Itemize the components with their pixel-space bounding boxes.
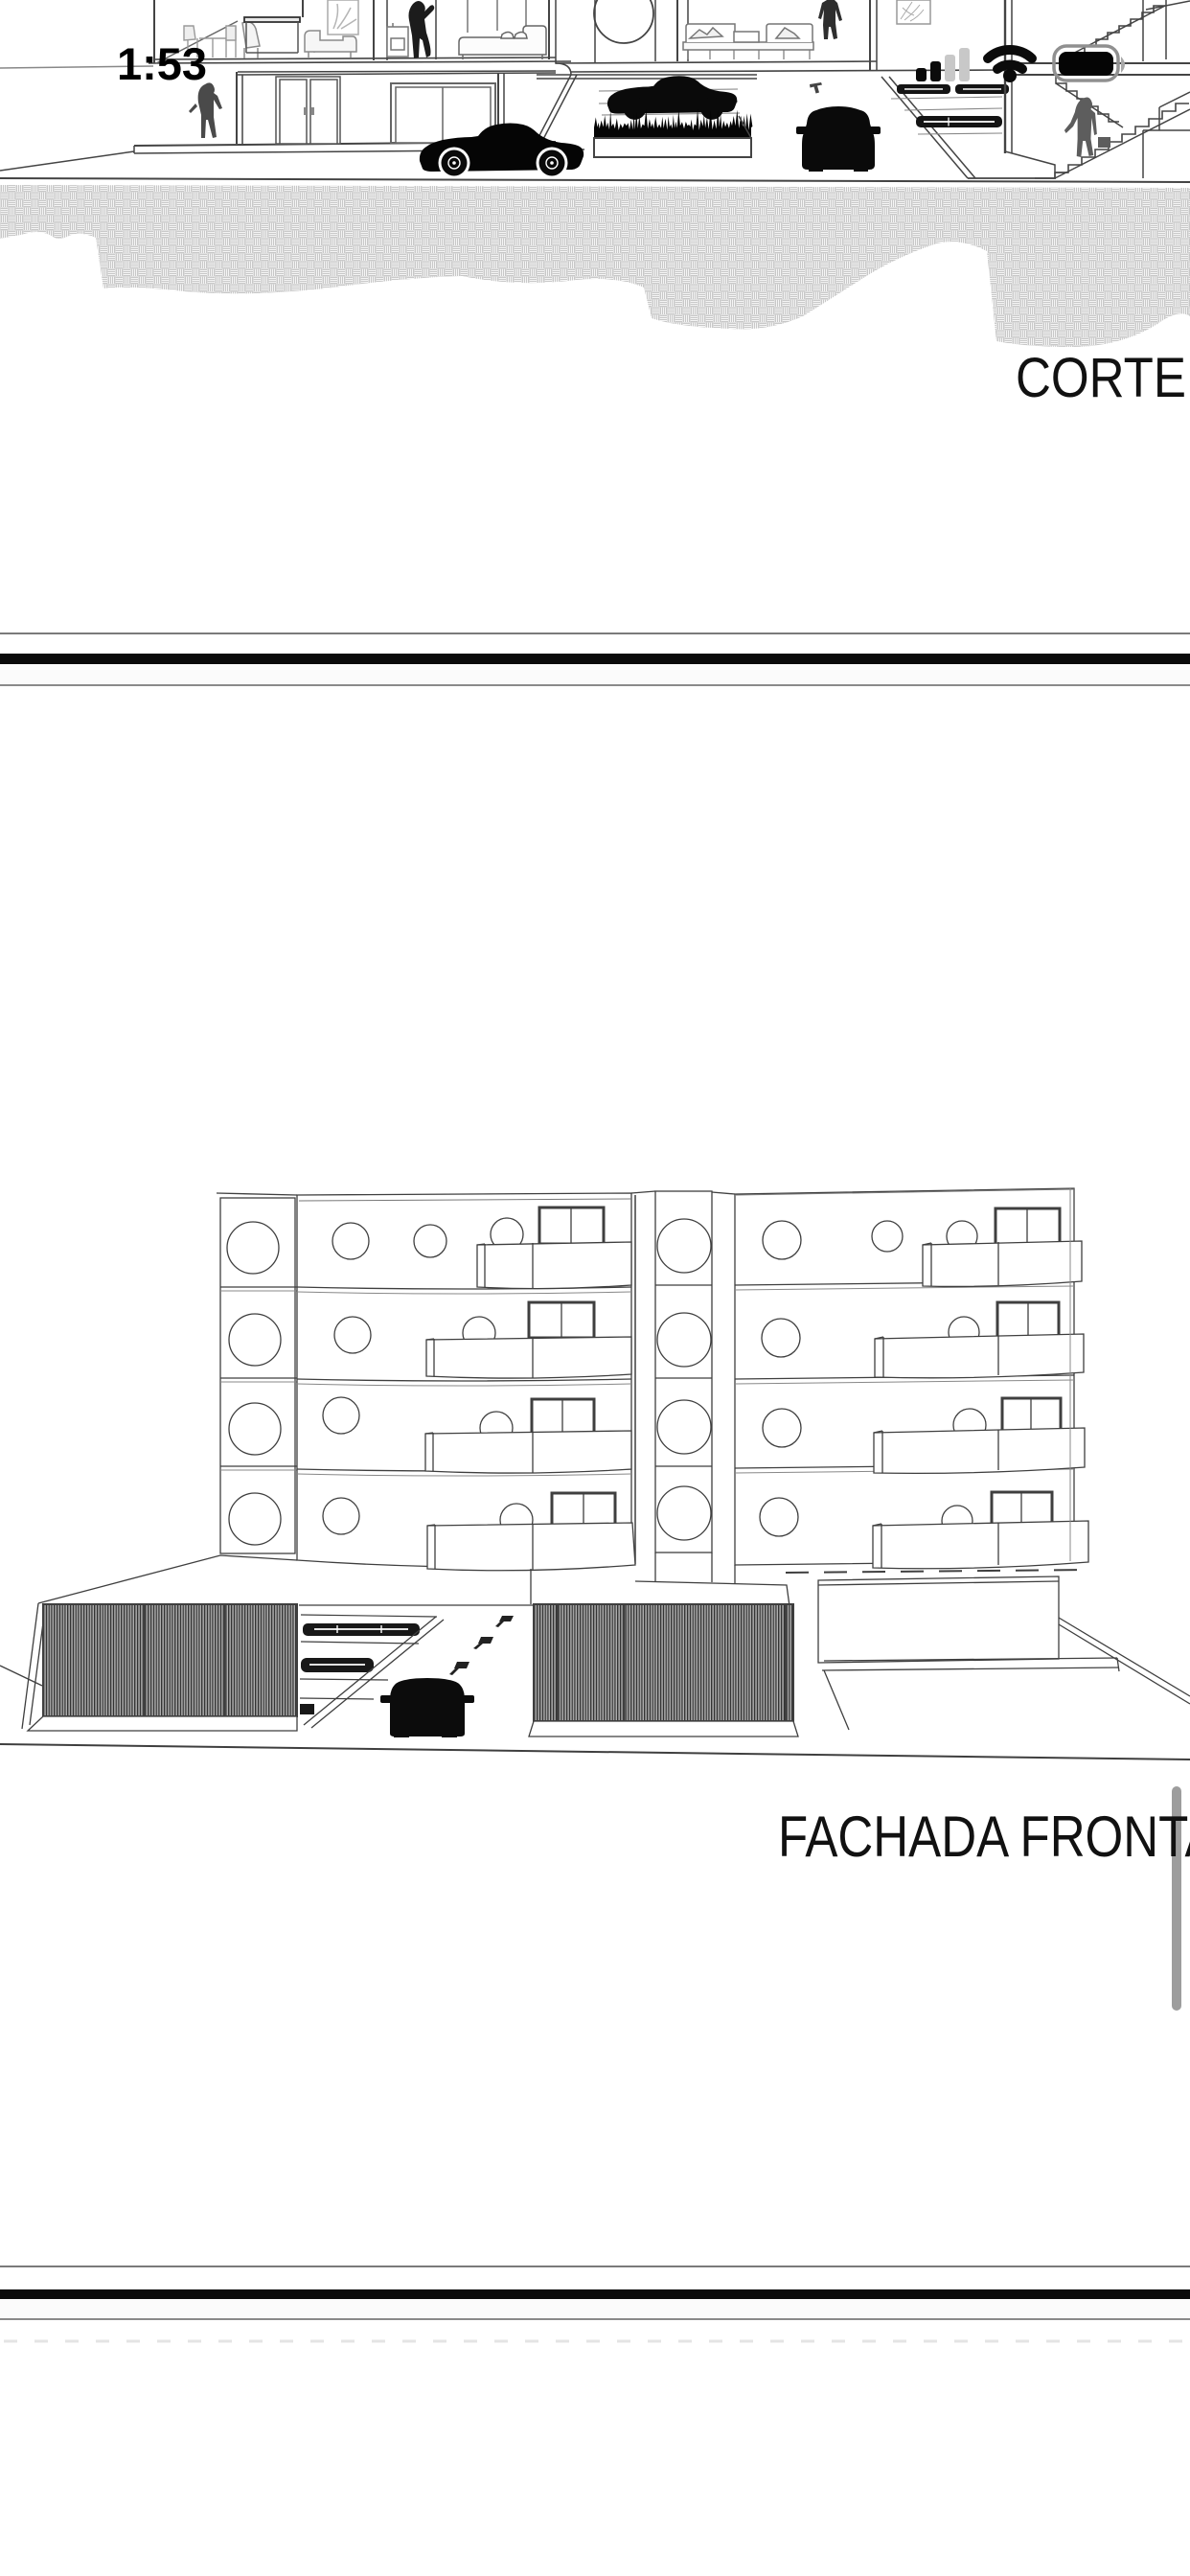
svg-text:FACHADA FRONTAL: FACHADA FRONTAL xyxy=(778,1805,1190,1869)
svg-text:CORTE: CORTE xyxy=(1016,347,1186,409)
svg-text:1:53: 1:53 xyxy=(117,38,207,89)
